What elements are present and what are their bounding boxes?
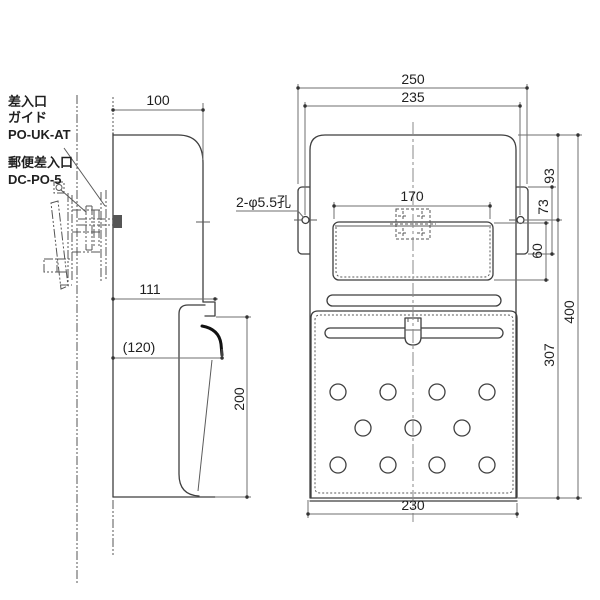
dim-flap-width-label: 170	[400, 188, 424, 204]
dim-upper-depth: 111	[113, 281, 218, 299]
guide-label-line1: 差入口	[8, 94, 47, 109]
dim-top-depth: 100	[113, 92, 203, 160]
lower-bracket	[44, 259, 57, 272]
side-view: 100 111 (120) 200	[44, 92, 251, 585]
drawing-canvas: 100 111 (120) 200	[0, 0, 600, 600]
guide-label-model: PO-UK-AT	[8, 127, 71, 142]
guide-label-line2: ガイド	[8, 110, 47, 125]
side-hood-lip	[203, 302, 215, 316]
lower-bracket-lines	[57, 259, 72, 285]
slot-flap-plate	[51, 201, 68, 289]
slot-label-model: DC-PO-5	[8, 172, 61, 187]
side-body-top-face	[113, 135, 203, 302]
slot-label-name: 郵便差入口	[8, 155, 73, 170]
dim-guide-plate-height-label: 73	[535, 199, 551, 215]
side-inner-slant	[198, 360, 212, 491]
dim-mount-hole-pitch-label: 235	[401, 89, 425, 105]
dim-hole-to-bottom-label: 307	[541, 343, 557, 367]
mount-hole-right	[517, 217, 524, 224]
dim-overall-height-label: 400	[561, 300, 577, 324]
part-labels: 差入口 ガイド PO-UK-AT 郵便差入口 DC-PO-5	[8, 94, 105, 212]
dim-flap-height: 60	[529, 223, 546, 280]
dim-upper-depth-label: 111	[139, 281, 160, 297]
dim-overall-width-label: 250	[401, 71, 425, 87]
front-view: 250 235 170 230 93 73 60	[236, 71, 582, 522]
washer-plates	[86, 206, 99, 250]
slot-plate-lines	[68, 190, 106, 284]
dim-door-swing-label: (120)	[123, 339, 156, 355]
bolt-shaft	[78, 219, 113, 225]
dim-top-depth-label: 100	[146, 92, 170, 108]
hole-note-label: 2-φ5.5孔	[236, 194, 291, 210]
dim-body-width-label: 230	[401, 497, 425, 513]
dim-overall-height: 400	[561, 135, 578, 498]
dim-hole-to-bottom: 307	[541, 220, 558, 498]
bolt-head	[113, 215, 122, 228]
side-flap-section-arc	[202, 326, 222, 355]
dim-door-swing-depth: (120)	[113, 339, 223, 358]
dim-flap-height-label: 60	[529, 243, 545, 259]
mail-slot-mechanism-phantom	[44, 182, 122, 289]
technical-drawing-svg: 100 111 (120) 200	[0, 0, 600, 600]
dim-door-height-label: 200	[231, 387, 247, 411]
side-door-outline	[179, 305, 205, 496]
dim-top-to-hole-label: 93	[541, 168, 557, 184]
slot-leader-line	[61, 190, 86, 212]
upper-slot	[327, 295, 501, 306]
hole-note: 2-φ5.5孔	[236, 194, 304, 218]
